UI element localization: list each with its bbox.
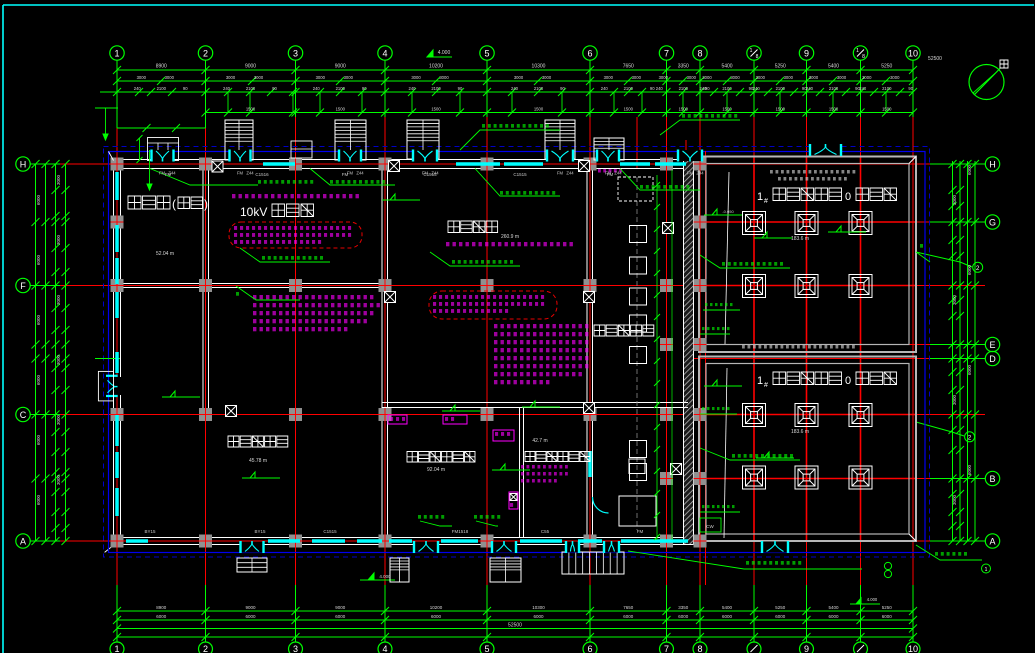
svg-text:2: 2 bbox=[203, 644, 208, 653]
svg-text:5400: 5400 bbox=[828, 605, 839, 610]
svg-text:3000: 3000 bbox=[632, 75, 642, 80]
svg-text:6000: 6000 bbox=[36, 314, 41, 325]
svg-text:9: 9 bbox=[804, 644, 809, 653]
svg-text:90: 90 bbox=[272, 86, 277, 91]
svg-text:10200: 10200 bbox=[429, 64, 443, 70]
svg-text:3000: 3000 bbox=[56, 174, 61, 185]
svg-text:240: 240 bbox=[223, 86, 231, 91]
svg-text:90: 90 bbox=[560, 86, 565, 91]
svg-text:7: 7 bbox=[664, 49, 669, 59]
svg-text:3350: 3350 bbox=[678, 605, 689, 610]
svg-text:1: 1 bbox=[757, 191, 763, 203]
svg-text:6000: 6000 bbox=[828, 614, 839, 619]
svg-text:6000: 6000 bbox=[335, 614, 346, 619]
svg-text:1500: 1500 bbox=[624, 106, 634, 111]
svg-text:3000: 3000 bbox=[862, 75, 872, 80]
svg-text:1500: 1500 bbox=[431, 106, 441, 111]
svg-text:6000: 6000 bbox=[623, 614, 634, 619]
svg-text:6000: 6000 bbox=[533, 614, 544, 619]
svg-text:1: 1 bbox=[750, 48, 753, 54]
svg-text:-0.050: -0.050 bbox=[722, 209, 734, 214]
svg-text:3000: 3000 bbox=[687, 75, 697, 80]
svg-text:240: 240 bbox=[601, 86, 609, 91]
svg-text:B: B bbox=[989, 474, 995, 484]
svg-text:2100: 2100 bbox=[624, 86, 634, 91]
svg-text:C55: C55 bbox=[541, 529, 550, 534]
svg-text:3000: 3000 bbox=[439, 75, 449, 80]
svg-text:90: 90 bbox=[650, 86, 655, 91]
svg-text:5400: 5400 bbox=[721, 64, 732, 70]
svg-text:10: 10 bbox=[908, 644, 918, 653]
svg-text:10: 10 bbox=[908, 49, 918, 59]
svg-text:5250: 5250 bbox=[882, 605, 893, 610]
svg-text:(: ( bbox=[172, 197, 176, 211]
svg-text:183.6 m: 183.6 m bbox=[791, 236, 809, 242]
svg-text:8900: 8900 bbox=[156, 64, 167, 70]
svg-text:90: 90 bbox=[458, 86, 463, 91]
svg-text:7650: 7650 bbox=[623, 64, 634, 70]
svg-text:2100: 2100 bbox=[776, 86, 786, 91]
svg-text:1: 1 bbox=[757, 375, 763, 387]
svg-text:0: 0 bbox=[845, 191, 851, 203]
svg-text:240: 240 bbox=[511, 86, 519, 91]
svg-text:FM: FM bbox=[347, 171, 354, 176]
svg-text:5250: 5250 bbox=[881, 64, 892, 70]
svg-text:C1515: C1515 bbox=[323, 529, 337, 534]
svg-text:3000: 3000 bbox=[56, 234, 61, 245]
svg-text:4: 4 bbox=[382, 644, 387, 653]
svg-text:8900: 8900 bbox=[156, 605, 167, 610]
svg-text:8: 8 bbox=[697, 644, 702, 653]
svg-text:3000: 3000 bbox=[952, 394, 957, 405]
svg-text:3000: 3000 bbox=[784, 75, 794, 80]
svg-text:6000: 6000 bbox=[36, 434, 41, 445]
svg-text:5: 5 bbox=[484, 644, 489, 653]
svg-text:FM: FM bbox=[422, 171, 429, 176]
svg-text:G: G bbox=[989, 218, 996, 228]
svg-text:4.000: 4.000 bbox=[438, 50, 451, 56]
svg-text:90: 90 bbox=[908, 86, 913, 91]
svg-text:A: A bbox=[20, 537, 26, 547]
svg-text:2100: 2100 bbox=[246, 86, 256, 91]
svg-text:6: 6 bbox=[587, 644, 592, 653]
svg-text:240: 240 bbox=[753, 86, 761, 91]
svg-text:1500: 1500 bbox=[534, 106, 544, 111]
svg-text:52500: 52500 bbox=[508, 623, 522, 629]
svg-text:FM: FM bbox=[159, 171, 166, 176]
svg-text:C: C bbox=[20, 410, 27, 420]
svg-text:2100: 2100 bbox=[882, 86, 892, 91]
svg-text:92.04 m: 92.04 m bbox=[427, 467, 445, 473]
svg-text:4.000: 4.000 bbox=[867, 597, 878, 602]
svg-text:5400: 5400 bbox=[828, 64, 839, 70]
svg-text:9000: 9000 bbox=[245, 64, 256, 70]
svg-text:Z44: Z44 bbox=[168, 171, 176, 176]
svg-text:3000: 3000 bbox=[344, 75, 354, 80]
svg-text:H: H bbox=[20, 160, 27, 170]
svg-text:Z44: Z44 bbox=[431, 171, 439, 176]
svg-text:#: # bbox=[764, 198, 768, 205]
svg-text:3000: 3000 bbox=[56, 294, 61, 305]
svg-text:52500: 52500 bbox=[928, 56, 942, 62]
svg-text:52.04 m: 52.04 m bbox=[156, 251, 174, 257]
svg-text:3000: 3000 bbox=[952, 194, 957, 205]
svg-text:C1515: C1515 bbox=[513, 172, 527, 177]
svg-text:5400: 5400 bbox=[722, 605, 733, 610]
svg-text:Z44: Z44 bbox=[696, 171, 704, 176]
svg-text:Z44: Z44 bbox=[356, 171, 364, 176]
svg-text:3000: 3000 bbox=[514, 75, 524, 80]
svg-text:FM: FM bbox=[557, 171, 564, 176]
svg-text:3000: 3000 bbox=[316, 75, 326, 80]
svg-text:6000: 6000 bbox=[967, 464, 972, 475]
svg-text:6000: 6000 bbox=[36, 374, 41, 385]
svg-text:2100: 2100 bbox=[534, 86, 544, 91]
svg-text:1: 1 bbox=[856, 48, 859, 54]
svg-text:3000: 3000 bbox=[952, 294, 957, 305]
svg-text:45.78 m: 45.78 m bbox=[249, 458, 267, 464]
svg-text:6000: 6000 bbox=[36, 494, 41, 505]
svg-text:4.000: 4.000 bbox=[379, 574, 391, 579]
svg-text:10300: 10300 bbox=[532, 64, 546, 70]
svg-text:6000: 6000 bbox=[882, 614, 893, 619]
svg-text:FM: FM bbox=[687, 171, 694, 176]
svg-text:8: 8 bbox=[697, 49, 702, 59]
svg-text:H: H bbox=[989, 160, 996, 170]
svg-text:FM: FM bbox=[605, 171, 612, 176]
svg-text:6000: 6000 bbox=[678, 614, 689, 619]
svg-text:42.7 m: 42.7 m bbox=[532, 438, 547, 444]
svg-text:7: 7 bbox=[664, 644, 669, 653]
svg-text:3: 3 bbox=[293, 644, 298, 653]
svg-text:1: 1 bbox=[985, 567, 988, 573]
svg-text:3000: 3000 bbox=[952, 494, 957, 505]
svg-text:3000: 3000 bbox=[837, 75, 847, 80]
svg-text:3000: 3000 bbox=[604, 75, 614, 80]
svg-text:1500: 1500 bbox=[336, 106, 346, 111]
svg-text:6000: 6000 bbox=[36, 194, 41, 205]
svg-text:183.6 m: 183.6 m bbox=[791, 429, 809, 435]
svg-text:6000: 6000 bbox=[245, 614, 256, 619]
svg-text:BY15: BY15 bbox=[254, 529, 266, 534]
svg-text:240: 240 bbox=[313, 86, 321, 91]
svg-text:6000: 6000 bbox=[775, 614, 786, 619]
svg-text:): ) bbox=[204, 197, 208, 211]
svg-text:240: 240 bbox=[409, 86, 417, 91]
svg-text:6000: 6000 bbox=[36, 254, 41, 265]
svg-text:3000: 3000 bbox=[702, 75, 712, 80]
svg-text:1500: 1500 bbox=[882, 106, 892, 111]
svg-text:3000: 3000 bbox=[165, 75, 175, 80]
svg-text:2: 2 bbox=[203, 49, 208, 59]
svg-text:FM: FM bbox=[237, 171, 244, 176]
svg-text:10kV: 10kV bbox=[240, 205, 267, 219]
svg-text:90: 90 bbox=[362, 86, 367, 91]
svg-text:1500: 1500 bbox=[722, 106, 732, 111]
svg-text:6: 6 bbox=[587, 49, 592, 59]
svg-text:240: 240 bbox=[656, 86, 664, 91]
svg-text:CW: CW bbox=[706, 524, 714, 529]
svg-text:6000: 6000 bbox=[156, 614, 167, 619]
svg-text:5: 5 bbox=[484, 49, 489, 59]
svg-text:1500: 1500 bbox=[829, 106, 839, 111]
svg-text:1500: 1500 bbox=[246, 106, 256, 111]
svg-text:3000: 3000 bbox=[756, 75, 766, 80]
svg-text:10300: 10300 bbox=[532, 605, 545, 610]
svg-text:3000: 3000 bbox=[56, 414, 61, 425]
svg-text:5250: 5250 bbox=[775, 605, 786, 610]
svg-text:3000: 3000 bbox=[254, 75, 264, 80]
svg-text:3000: 3000 bbox=[411, 75, 421, 80]
svg-text:3350: 3350 bbox=[678, 64, 689, 70]
svg-text:C1516: C1516 bbox=[255, 172, 269, 177]
svg-text:240: 240 bbox=[806, 86, 814, 91]
svg-text:10200: 10200 bbox=[430, 605, 443, 610]
svg-text:3000: 3000 bbox=[56, 474, 61, 485]
svg-text:FM1518: FM1518 bbox=[452, 529, 469, 534]
svg-text:3000: 3000 bbox=[137, 75, 147, 80]
svg-text:3000: 3000 bbox=[226, 75, 236, 80]
svg-text:3000: 3000 bbox=[542, 75, 552, 80]
svg-text:Z44: Z44 bbox=[246, 171, 254, 176]
svg-text:240: 240 bbox=[859, 86, 867, 91]
svg-text:3000: 3000 bbox=[659, 75, 669, 80]
svg-text:1500: 1500 bbox=[679, 106, 689, 111]
svg-text:9000: 9000 bbox=[335, 64, 346, 70]
svg-text:3000: 3000 bbox=[890, 75, 900, 80]
svg-text:E: E bbox=[989, 340, 995, 350]
svg-text:F: F bbox=[20, 281, 26, 291]
svg-text:6000: 6000 bbox=[967, 164, 972, 175]
svg-text:3000: 3000 bbox=[56, 354, 61, 365]
svg-text:7650: 7650 bbox=[623, 605, 634, 610]
svg-text:0: 0 bbox=[845, 375, 851, 387]
svg-text:2100: 2100 bbox=[722, 86, 732, 91]
svg-text:Z44: Z44 bbox=[566, 171, 574, 176]
svg-text:8: 8 bbox=[862, 54, 865, 60]
svg-text:FM: FM bbox=[637, 529, 644, 534]
svg-text:A: A bbox=[989, 537, 995, 547]
svg-text:2100: 2100 bbox=[431, 86, 441, 91]
svg-text:6000: 6000 bbox=[967, 364, 972, 375]
svg-text:Z44: Z44 bbox=[614, 171, 622, 176]
svg-text:1: 1 bbox=[114, 644, 119, 653]
svg-text:90: 90 bbox=[183, 86, 188, 91]
svg-text:240: 240 bbox=[134, 86, 142, 91]
svg-text:6000: 6000 bbox=[967, 264, 972, 275]
svg-text:3: 3 bbox=[293, 49, 298, 59]
svg-text:9: 9 bbox=[804, 49, 809, 59]
svg-text:2100: 2100 bbox=[336, 86, 346, 91]
svg-text:2100: 2100 bbox=[829, 86, 839, 91]
svg-text:3000: 3000 bbox=[809, 75, 819, 80]
svg-text:6000: 6000 bbox=[431, 614, 442, 619]
svg-text:BY15: BY15 bbox=[144, 529, 156, 534]
svg-text:260.9 m: 260.9 m bbox=[501, 234, 519, 240]
svg-text:1500: 1500 bbox=[776, 106, 786, 111]
svg-text:8: 8 bbox=[756, 54, 759, 60]
svg-text:D: D bbox=[989, 354, 996, 364]
svg-text:6000: 6000 bbox=[722, 614, 733, 619]
svg-text:240: 240 bbox=[700, 86, 708, 91]
svg-text:2100: 2100 bbox=[679, 86, 689, 91]
svg-text:9000: 9000 bbox=[245, 605, 256, 610]
svg-text:2100: 2100 bbox=[157, 86, 167, 91]
svg-text:3000: 3000 bbox=[730, 75, 740, 80]
svg-text:1: 1 bbox=[114, 49, 119, 59]
svg-text:5250: 5250 bbox=[775, 64, 786, 70]
svg-text:4: 4 bbox=[382, 49, 387, 59]
svg-text:9000: 9000 bbox=[335, 605, 346, 610]
svg-text:#: # bbox=[764, 382, 768, 389]
